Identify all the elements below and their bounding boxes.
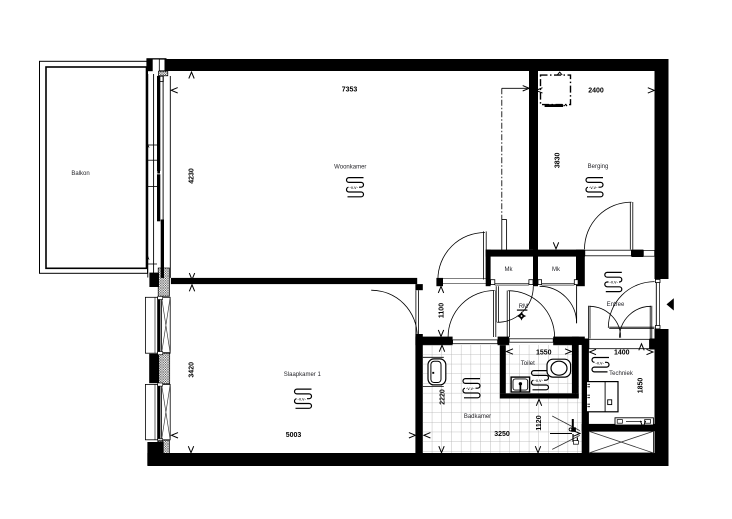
svg-text:Berging: Berging [588, 164, 609, 170]
svg-text:Balkon: Balkon [71, 171, 89, 177]
svg-text:RM: RM [519, 304, 528, 310]
svg-text:Mk: Mk [552, 267, 561, 273]
svg-text:1400: 1400 [614, 350, 630, 357]
svg-text:Badkamer: Badkamer [464, 414, 491, 420]
svg-text:2220: 2220 [440, 389, 447, 405]
svg-text:2400: 2400 [588, 87, 604, 94]
svg-text:4230: 4230 [189, 168, 196, 184]
svg-text:-v.v-: -v.v- [297, 397, 306, 402]
svg-text:Techniek: Techniek [609, 371, 634, 377]
svg-text:-v.v-: -v.v- [609, 280, 618, 285]
svg-text:1550: 1550 [536, 349, 552, 356]
svg-text:1850: 1850 [637, 378, 644, 394]
svg-text:3830: 3830 [555, 153, 562, 169]
svg-text:1000: 1000 [573, 359, 580, 375]
svg-text:1120: 1120 [536, 415, 543, 430]
svg-text:Mk: Mk [505, 267, 514, 273]
svg-text:-v.v-: -v.v- [349, 185, 358, 190]
svg-text:3420: 3420 [189, 362, 196, 378]
svg-text:-v.v-: -v.v- [595, 360, 604, 365]
svg-text:Slaapkamer 1: Slaapkamer 1 [284, 372, 322, 378]
svg-text:Woonkamer: Woonkamer [334, 165, 366, 171]
svg-text:7353: 7353 [342, 87, 358, 94]
svg-text:-v.v-: -v.v- [589, 185, 598, 190]
svg-text:5003: 5003 [286, 432, 302, 439]
svg-text:-v.v-: -v.v- [534, 378, 543, 383]
svg-text:Toilet: Toilet [521, 361, 535, 367]
svg-text:1100: 1100 [439, 303, 446, 318]
svg-text:-v.v-: -v.v- [466, 386, 475, 391]
svg-text:Entree: Entree [607, 302, 625, 308]
svg-text:3250: 3250 [494, 431, 510, 438]
